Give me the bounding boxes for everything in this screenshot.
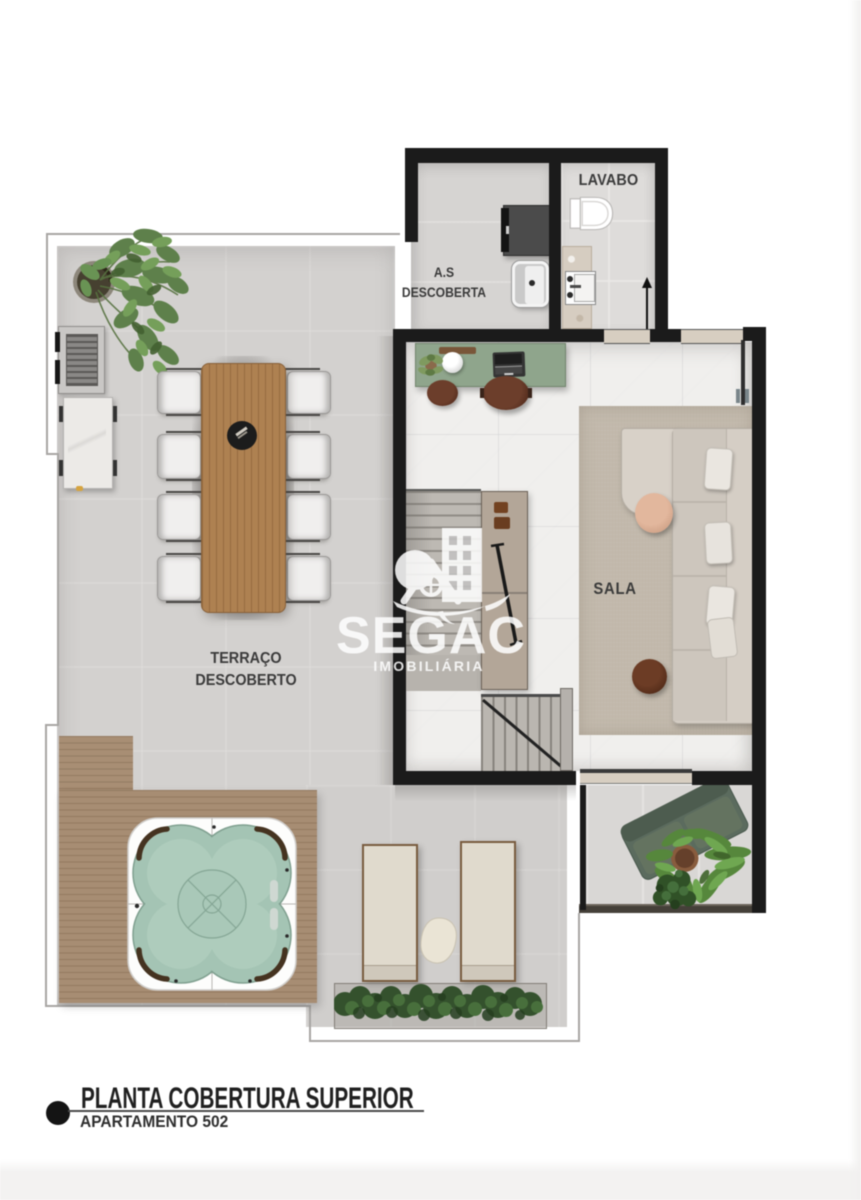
svg-text:SEGAC: SEGAC [336,607,526,665]
svg-text:IMOBILIÁRIA: IMOBILIÁRIA [373,658,484,674]
